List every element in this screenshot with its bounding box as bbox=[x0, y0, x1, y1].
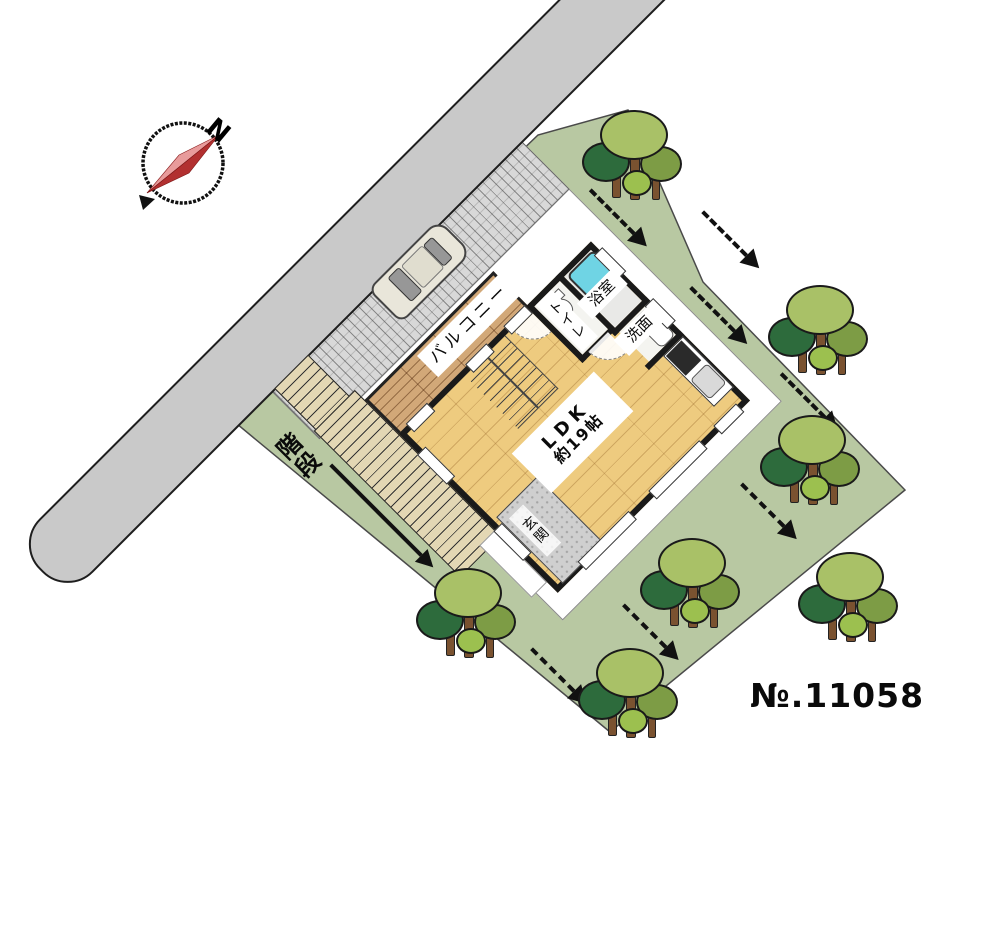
tree-icon bbox=[768, 283, 868, 383]
plan-number: №.11058 bbox=[750, 676, 924, 715]
tree-icon bbox=[416, 566, 516, 666]
tree-icon bbox=[798, 550, 898, 650]
tree-icon bbox=[582, 108, 682, 208]
tree-icon bbox=[640, 536, 740, 636]
tree-icon bbox=[760, 413, 860, 513]
tree-icon bbox=[578, 646, 678, 746]
